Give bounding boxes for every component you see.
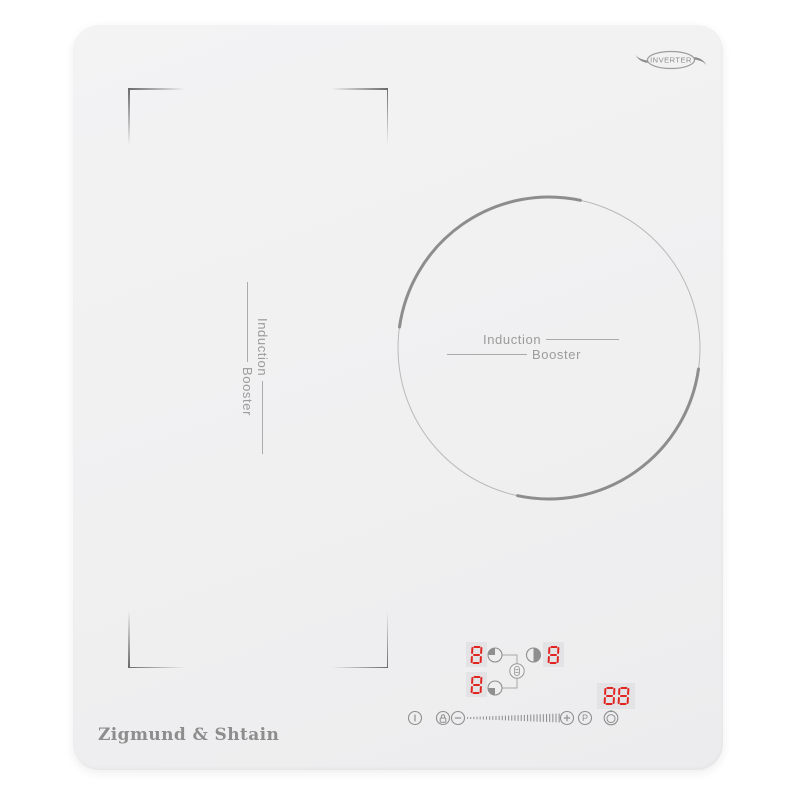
power-slider[interactable]: [467, 714, 560, 723]
seven-segment-digit: [471, 646, 483, 664]
badge-label: INVERTER: [650, 56, 692, 65]
display-rear-left-level: [466, 642, 487, 667]
badge-right-swoosh-icon: [695, 57, 707, 66]
zone-bracket-top-left-h: [128, 88, 185, 90]
right-zone-booster-label: Booster: [532, 347, 581, 362]
seven-segment-digit: [603, 687, 615, 705]
display-front-left-level: [466, 672, 487, 697]
bridge-icon[interactable]: [510, 664, 524, 678]
zone-selector-right-icon[interactable]: [527, 648, 541, 662]
left-zone-booster-label: Booster: [240, 367, 255, 416]
label-line: [447, 354, 527, 355]
zone-bracket-bottom-left-v: [128, 611, 130, 668]
left-zone-induction-label: Induction: [255, 318, 270, 376]
zone-selector-rear-left-icon[interactable]: [488, 648, 502, 662]
lock-button[interactable]: [437, 712, 450, 725]
minus-button[interactable]: [452, 712, 465, 725]
power-button[interactable]: [409, 712, 422, 725]
zone-ring-thick-bottom-right: [518, 369, 699, 499]
label-line: [546, 339, 619, 340]
seven-segment-digit: [617, 687, 629, 705]
seven-segment-digit: [471, 676, 483, 694]
label-line: [262, 381, 263, 454]
timer-button[interactable]: [604, 710, 618, 724]
zone-bracket-top-right-h: [331, 88, 388, 90]
zone-ring-thick-top-left: [400, 197, 581, 327]
zone-selector-front-left-icon[interactable]: [488, 681, 502, 695]
boost-label: P: [582, 713, 588, 723]
display-timer: [597, 683, 635, 709]
right-zone-label: Induction Booster: [447, 333, 619, 361]
zone-bracket-top-right-v: [387, 88, 389, 145]
left-zone-label: Induction Booster: [241, 282, 269, 454]
zone-bracket-bottom-right-h: [331, 667, 388, 669]
label-line: [247, 282, 248, 362]
cooktop-surface: INVERTER Induction Booster Induction: [73, 25, 723, 770]
brand-logo: Zigmund & Shtain: [98, 725, 279, 745]
padlock-icon: [440, 718, 446, 722]
plus-button[interactable]: [561, 712, 574, 725]
display-right-level: [543, 642, 564, 667]
right-zone-induction-label: Induction: [483, 332, 541, 347]
boost-button[interactable]: P: [579, 712, 592, 725]
zone-bracket-bottom-right-v: [387, 611, 389, 668]
seven-segment-digit: [548, 646, 560, 664]
badge-left-swoosh-icon: [636, 55, 648, 64]
zone-bracket-top-left-v: [128, 88, 130, 145]
inverter-badge: INVERTER: [633, 49, 709, 73]
zone-bracket-bottom-left-h: [128, 667, 185, 669]
